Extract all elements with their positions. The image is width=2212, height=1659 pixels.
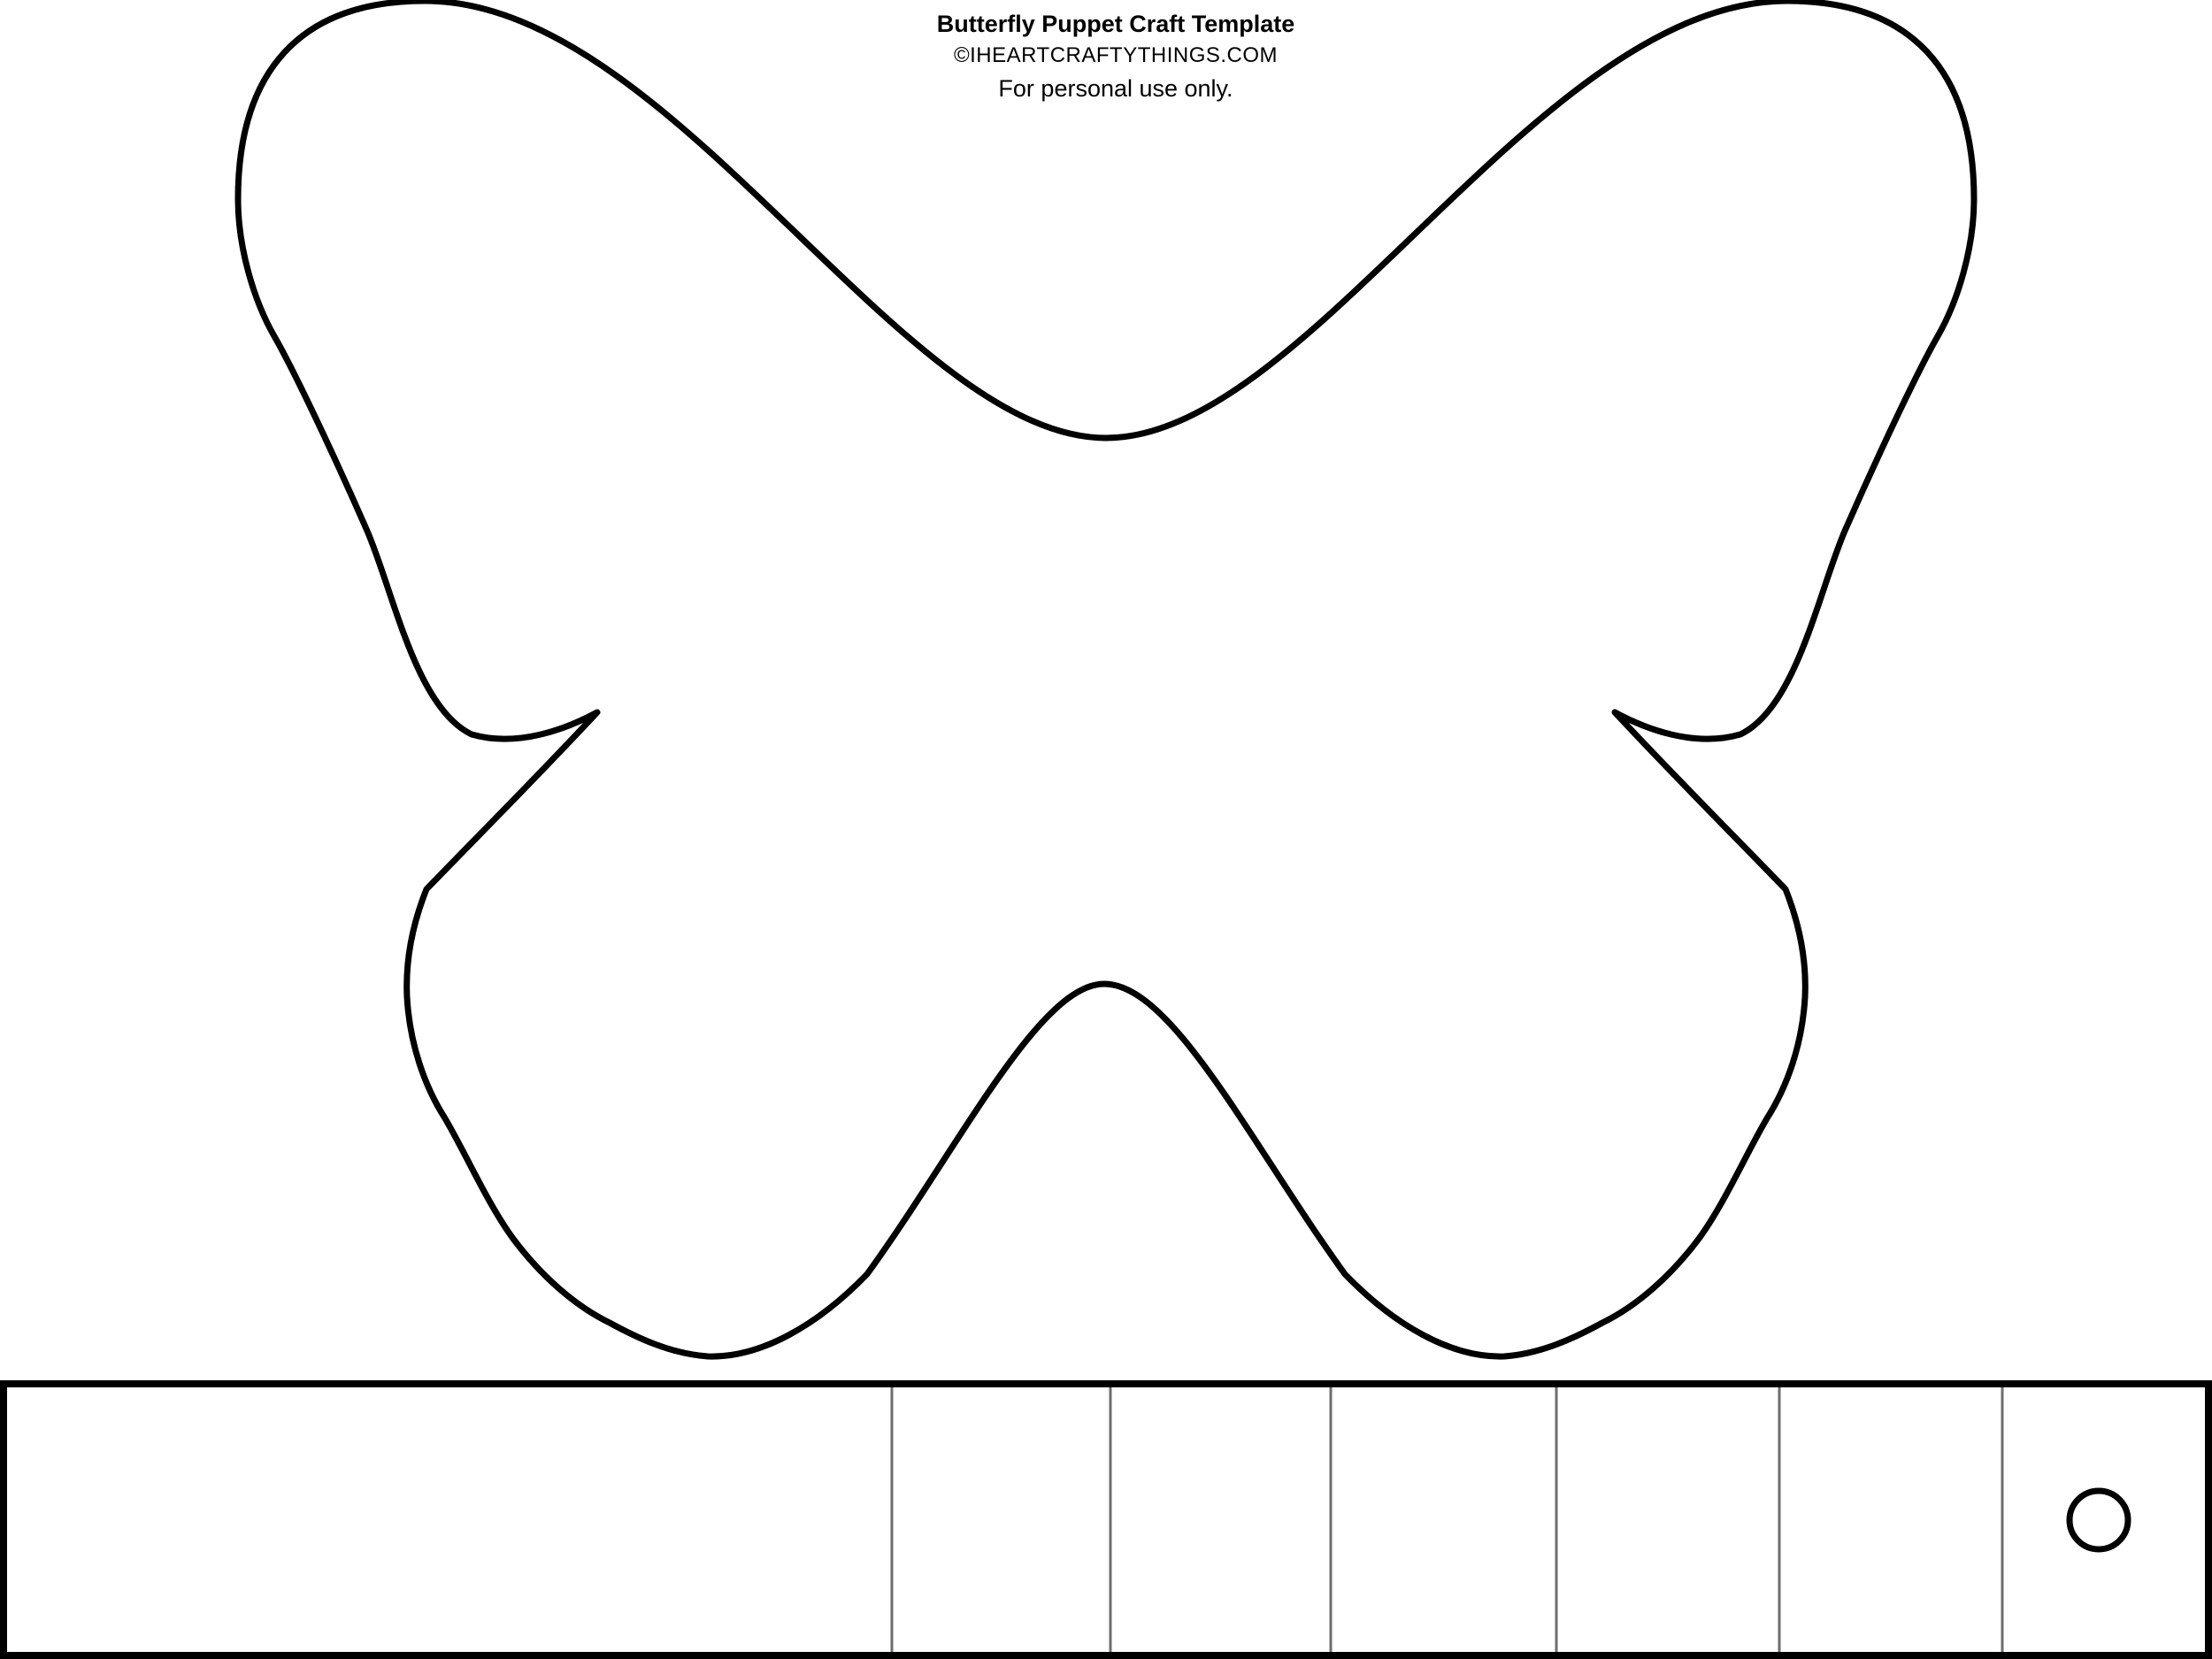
headband-strip [4,1384,2208,1655]
butterfly-outline [238,1,1974,1356]
template-canvas [0,0,2212,1659]
craft-template-page: Butterfly Puppet Craft Template ©IHEARTC… [0,0,2212,1659]
